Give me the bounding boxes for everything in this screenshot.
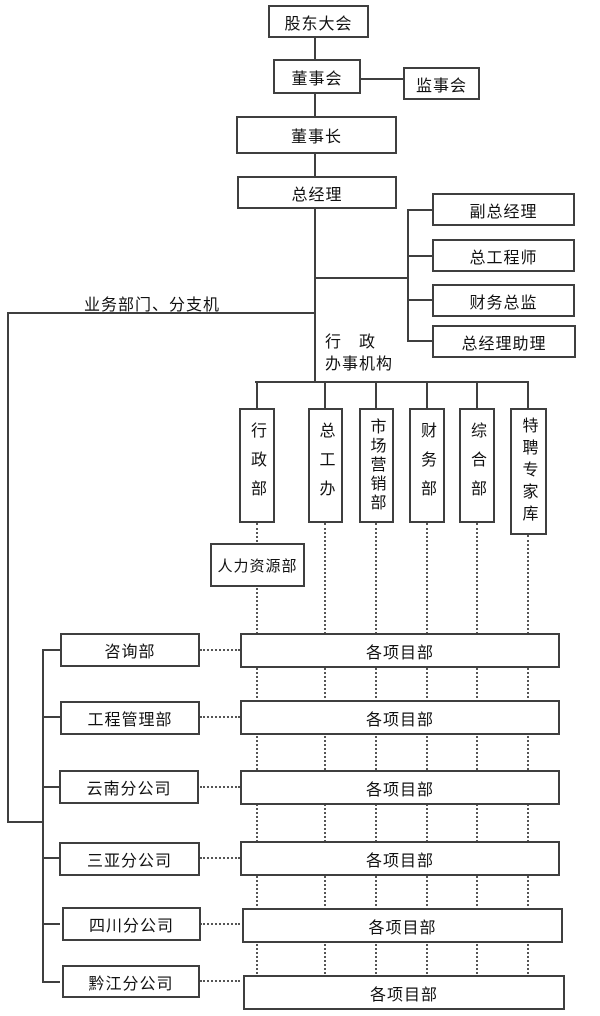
- line-chairman-gm: [314, 154, 316, 176]
- admin-stub-2: [324, 381, 326, 408]
- node-yunnan-branch: 云南分公司: [59, 770, 199, 804]
- node-board-of-directors: 董事会: [273, 59, 361, 94]
- admin-dept-label: 行政部: [249, 422, 265, 509]
- node-project-depts-6: 各项目部: [243, 975, 565, 1010]
- exec-stub-2: [408, 255, 432, 257]
- unit-bracket-vertical: [42, 649, 44, 983]
- line-trunk-exec-bracket: [315, 277, 408, 279]
- node-finance-director: 财务总监: [432, 284, 575, 317]
- admin-stub-6: [527, 381, 529, 408]
- admin-office-label-line2: 办事机构: [325, 353, 393, 375]
- unit-stub-3: [42, 786, 60, 788]
- node-finance-dept: 财务部: [409, 408, 445, 523]
- admin-stub-5: [476, 381, 478, 408]
- business-branch-label: 业务部门、分支机: [84, 291, 220, 315]
- unit-stub-1: [42, 649, 60, 651]
- admin-office-label: 行 政 办事机构: [325, 331, 393, 375]
- far-left-join: [7, 821, 44, 823]
- node-consulting-dept: 咨询部: [60, 633, 200, 667]
- line-board-chairman: [314, 94, 316, 116]
- node-engineering-mgmt-dept: 工程管理部: [60, 701, 200, 735]
- dotted-connector-row-5: [200, 923, 240, 925]
- node-general-manager: 总经理: [237, 176, 397, 209]
- node-project-depts-3: 各项目部: [240, 770, 560, 805]
- org-chart: 业务部门、分支机 行 政 办事机构 股东大会 董事会 监事会 董事长 总经理 副…: [0, 0, 600, 1016]
- node-chairman: 董事长: [236, 116, 397, 154]
- admin-dept-label: 财务部: [419, 422, 435, 509]
- admin-rail: [255, 381, 529, 383]
- node-sichuan-branch: 四川分公司: [62, 907, 201, 941]
- line-gm-trunk: [314, 209, 316, 383]
- admin-office-label-line1: 行 政: [325, 331, 393, 353]
- dotted-connector-row-1: [200, 649, 240, 651]
- node-chief-engineer-office: 总工办: [308, 408, 343, 523]
- line-shareholders-board: [314, 38, 316, 59]
- unit-stub-6: [42, 981, 60, 983]
- node-general-affairs-dept: 综合部: [459, 408, 495, 523]
- dotted-connector-row-3: [200, 786, 240, 788]
- node-hr-dept: 人力资源部: [210, 543, 305, 587]
- admin-dept-label: 综合部: [469, 422, 485, 509]
- unit-stub-5: [42, 923, 60, 925]
- line-board-supervisory: [361, 78, 403, 80]
- admin-dept-label: 市场营销部: [369, 418, 385, 513]
- exec-stub-1: [408, 209, 432, 211]
- node-shareholders-meeting: 股东大会: [268, 5, 369, 38]
- node-project-depts-2: 各项目部: [240, 700, 560, 735]
- admin-dept-label: 特聘专家库: [521, 417, 537, 527]
- node-chief-engineer: 总工程师: [432, 239, 575, 272]
- admin-stub-1: [256, 381, 258, 408]
- admin-dept-label: 总工办: [318, 422, 334, 509]
- dotted-connector-row-2: [200, 716, 240, 718]
- node-supervisory-board: 监事会: [403, 67, 480, 100]
- admin-stub-4: [426, 381, 428, 408]
- node-project-depts-5: 各项目部: [242, 908, 563, 943]
- node-expert-pool: 特聘专家库: [510, 408, 547, 535]
- node-admin-dept: 行政部: [239, 408, 275, 523]
- node-sanya-branch: 三亚分公司: [59, 842, 200, 876]
- dotted-connector-row-6: [200, 980, 240, 982]
- unit-stub-2: [42, 716, 60, 718]
- node-qianjiang-branch: 黔江分公司: [62, 965, 200, 998]
- node-project-depts-1: 各项目部: [240, 633, 560, 668]
- exec-stub-3: [408, 299, 432, 301]
- node-marketing-dept: 市场营销部: [359, 408, 394, 523]
- far-left-vertical: [7, 312, 9, 823]
- node-project-depts-4: 各项目部: [240, 841, 560, 876]
- node-deputy-gm: 副总经理: [432, 193, 575, 226]
- admin-stub-3: [375, 381, 377, 408]
- exec-stub-4: [408, 340, 432, 342]
- unit-stub-4: [42, 857, 60, 859]
- exec-bracket-vertical: [407, 209, 409, 342]
- node-gm-assistant: 总经理助理: [432, 325, 576, 358]
- dotted-connector-row-4: [200, 857, 240, 859]
